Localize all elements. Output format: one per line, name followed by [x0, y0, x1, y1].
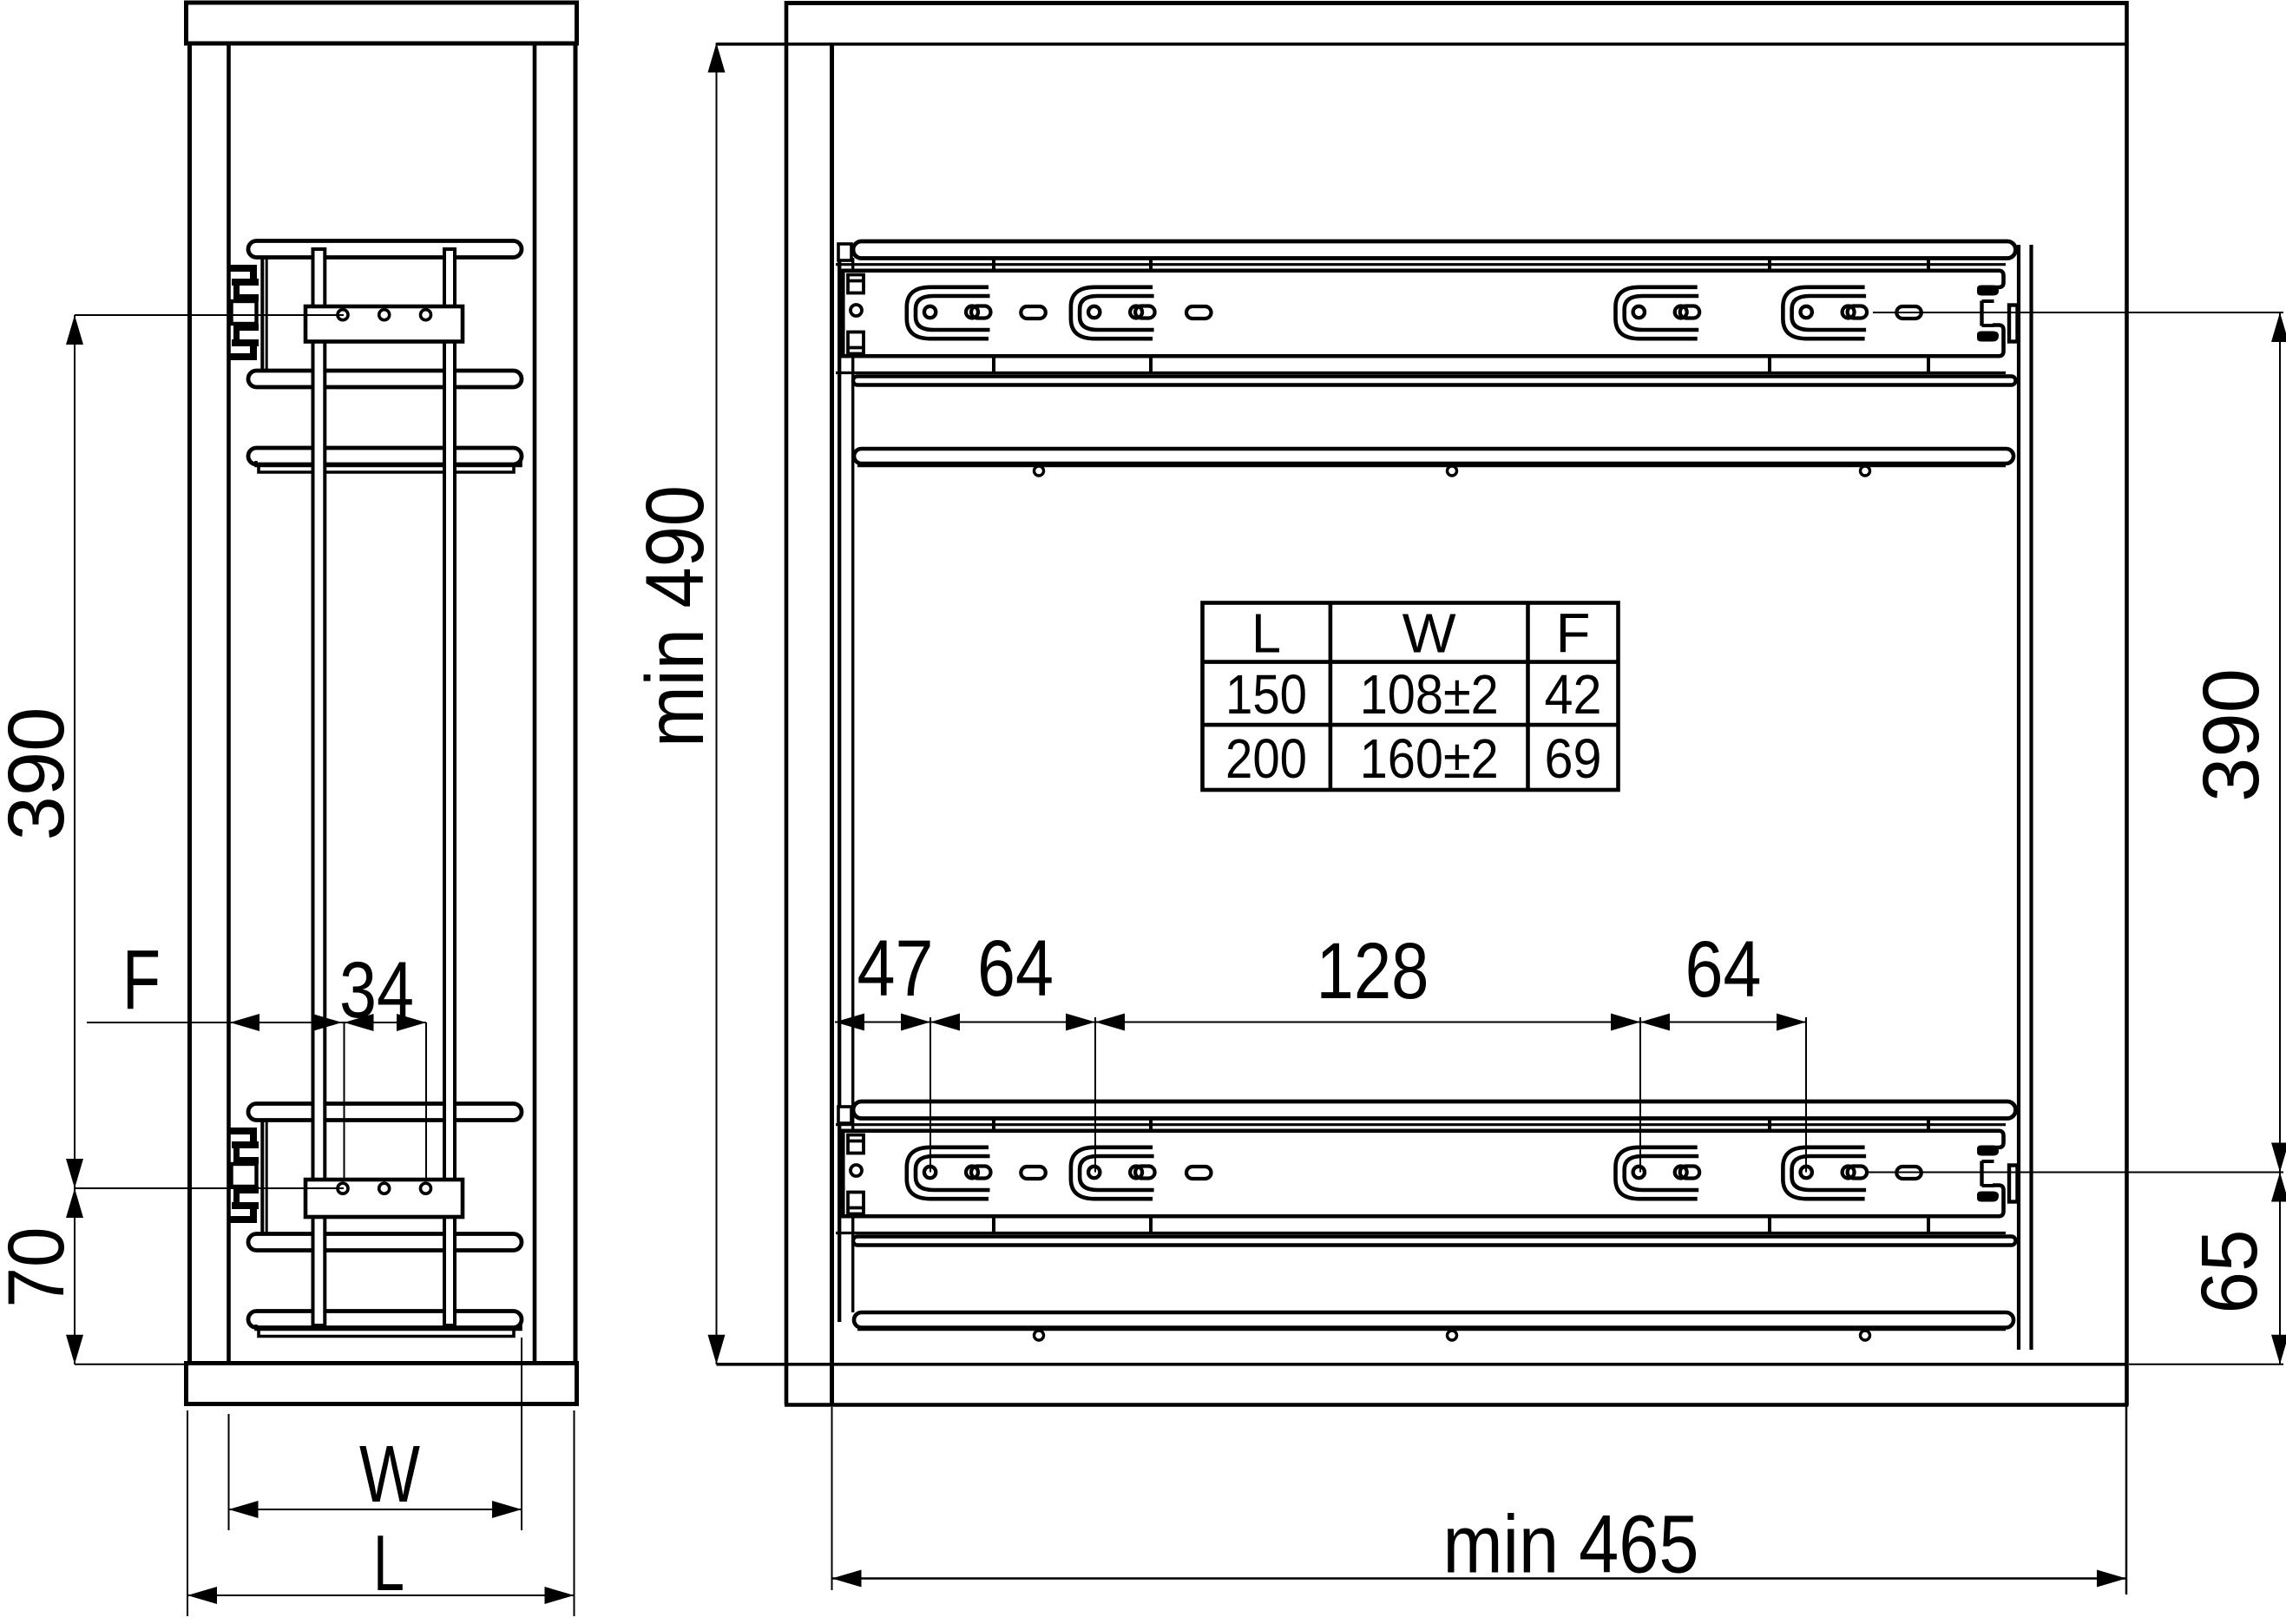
svg-text:150: 150 [1225, 663, 1307, 726]
svg-text:64: 64 [1685, 925, 1762, 1014]
svg-text:390: 390 [0, 707, 81, 841]
svg-text:min 465: min 465 [1443, 1499, 1699, 1591]
svg-text:L: L [373, 1520, 404, 1608]
svg-text:L: L [1251, 602, 1281, 665]
svg-text:128: 128 [1317, 927, 1429, 1016]
svg-text:42: 42 [1545, 663, 1602, 726]
svg-text:34: 34 [339, 946, 414, 1035]
svg-text:70: 70 [0, 1227, 81, 1308]
svg-text:160±2: 160±2 [1360, 727, 1499, 790]
svg-text:min 490: min 490 [629, 485, 721, 747]
svg-text:W: W [359, 1429, 420, 1519]
svg-text:108±2: 108±2 [1360, 663, 1499, 726]
svg-text:390: 390 [2187, 668, 2276, 802]
svg-text:W: W [1402, 602, 1457, 665]
svg-text:69: 69 [1545, 727, 1602, 790]
svg-text:65: 65 [2185, 1230, 2274, 1314]
svg-text:47: 47 [857, 924, 934, 1013]
svg-text:64: 64 [977, 924, 1054, 1013]
svg-text:F: F [122, 932, 161, 1027]
svg-text:200: 200 [1225, 727, 1307, 790]
svg-text:F: F [1556, 602, 1591, 665]
